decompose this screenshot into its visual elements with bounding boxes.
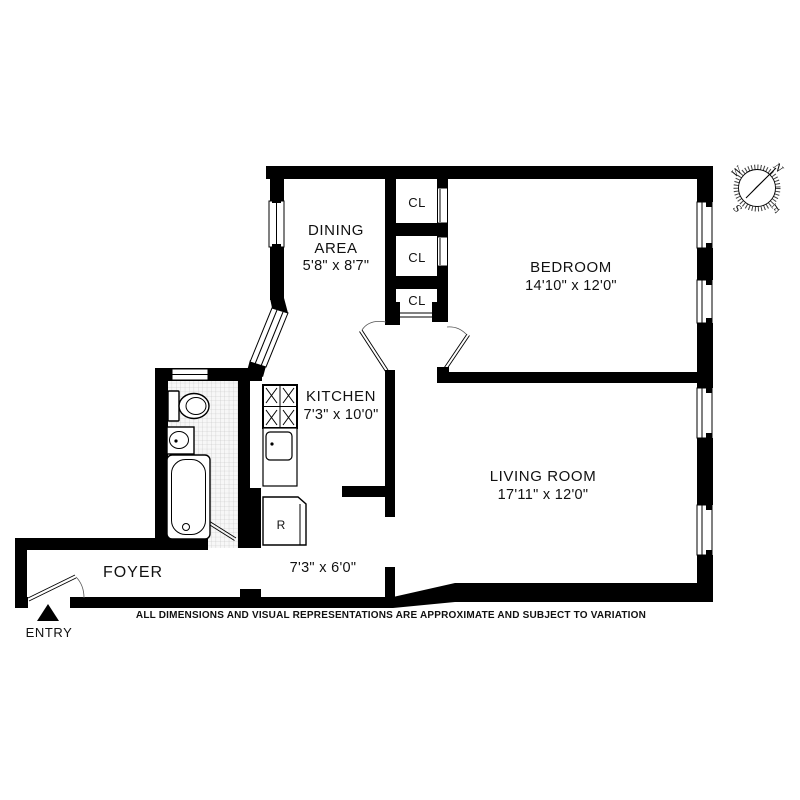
kitchen-sink [266,432,292,460]
dining-area-label-line2: AREA [314,240,357,257]
closet-right-wall-segment [437,179,448,188]
dining-area-label-line1: DINING [308,222,364,239]
closet-label-3: CL [408,293,425,308]
top-wall [266,166,712,179]
foyer-label: FOYER [103,564,163,581]
disclaimer-text: ALL DIMENSIONS AND VISUAL REPRESENTATION… [136,610,646,621]
living-window-1 [697,388,712,438]
corridor-pier [240,589,261,598]
kitchen-fixtures: R [263,385,306,545]
living-room-label: LIVING ROOM [490,468,597,485]
bathroom-sink [167,427,194,454]
bedroom-door-stub [437,367,449,383]
entry-marker: ENTRY [26,604,73,640]
compass-south: S [732,201,745,214]
bathroom-corner-pier [238,488,261,548]
foyer-top-wall [15,538,208,550]
living-left-stub [385,567,395,597]
refrigerator: R [263,497,306,545]
bottom-wall-left-stub [15,597,28,608]
entry-label: ENTRY [26,625,73,640]
bedroom-window-1 [697,202,712,248]
kitchen-bottom-wall [342,486,395,497]
bathroom-window [172,369,208,380]
closet-jamb-right [432,302,448,322]
kitchen-dimensions: 7'3" x 10'0" [303,407,378,423]
bedroom-dimensions: 14'10" x 12'0" [525,278,617,294]
living-window-2 [697,505,712,555]
bedroom-label: BEDROOM [530,259,612,276]
toilet [168,391,209,421]
closet-door-3 [398,313,432,317]
closet-jamb-left [385,302,400,325]
living-room-dimensions: 17'11" x 12'0" [498,487,589,503]
kitchen-label: KITCHEN [306,388,376,405]
refrigerator-label: R [277,518,286,532]
french-door-left [360,321,389,371]
bedroom-door [444,327,470,370]
right-wall-segment [697,166,713,202]
dining-left-wall-lower [270,247,284,300]
closet-right-wall-segment [437,223,448,237]
right-wall-segment [697,438,713,505]
bedroom-living-wall [437,372,697,383]
dining-left-wall-upper [270,166,284,202]
bedroom-window-2 [697,280,712,323]
hall-dimensions: 7'3" x 6'0" [290,560,357,576]
floor-plan: R DINING AREA 5'8" x 8'7" BEDROOM 14'10"… [0,0,800,800]
compass-rose-icon: N E S W [730,161,786,215]
right-wall-segment [697,248,713,280]
compass-east: E [768,200,782,214]
dining-area-dimensions: 5'8" x 8'7" [303,258,370,274]
closet-door-2 [438,237,448,266]
floor-plan-page: R DINING AREA 5'8" x 8'7" BEDROOM 14'10"… [0,0,800,800]
bathroom-left-wall [155,368,168,548]
stove [263,385,297,428]
dining-window [269,198,284,249]
bottom-wall-foyer [70,597,393,608]
living-room-bottom-wall [393,583,712,608]
diagonal-window [250,308,288,367]
entry-arrow-icon [37,604,59,621]
right-wall-segment [697,323,713,388]
closet-label-1: CL [408,195,425,210]
bathroom-fixtures [167,391,210,539]
closet-label-2: CL [408,250,425,265]
closet-door-1 [438,188,448,223]
bathtub [167,455,210,539]
